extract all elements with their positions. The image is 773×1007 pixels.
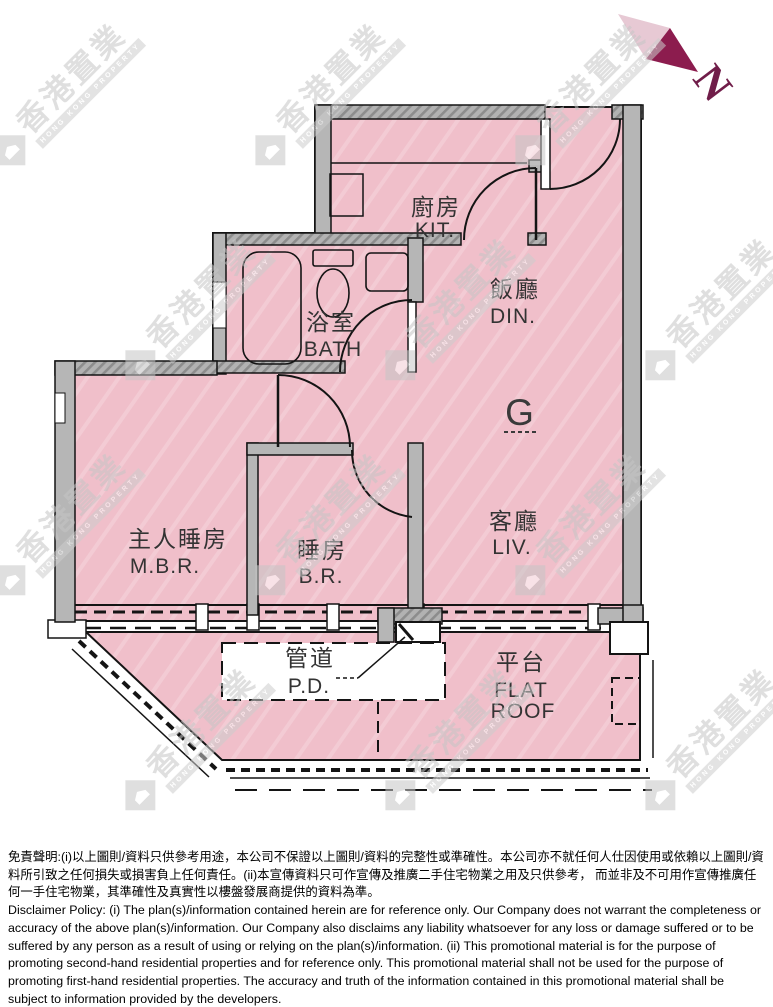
compass: N	[618, 14, 742, 111]
room-label-bath-en: BATH	[304, 338, 362, 361]
room-label-kitchen-zh: 廚房	[411, 194, 461, 220]
room-label-dining-en: DIN.	[490, 305, 536, 328]
room-label-mbr-en: M.B.R.	[130, 555, 200, 578]
entry-door-leaf	[541, 119, 550, 189]
room-label-pd-en: P.D.	[288, 675, 330, 698]
disclaimer: 免責聲明:(i)以上圖則/資料只供參考用途，本公司不保證以上圖則/資料的完整性或…	[8, 849, 765, 1007]
room-label-flatroof-zh: 平台	[496, 649, 546, 675]
room-label-bath-zh: 浴室	[306, 309, 356, 335]
room-label-living-zh: 客廳	[489, 508, 539, 534]
room-label-br-zh: 睡房	[297, 537, 347, 563]
room-label-br-en: B.R.	[299, 565, 344, 588]
disclaimer-chinese: 免責聲明:(i)以上圖則/資料只供參考用途，本公司不保證以上圖則/資料的完整性或…	[8, 849, 765, 902]
floor-plan-drawing: 廚房 KIT. 飯廳 DIN. 浴室 BATH 主人睡房 M.B.R. 睡房 B…	[0, 0, 773, 845]
room-label-flatroof-en1: FLAT	[494, 679, 548, 702]
bath-door-leaf	[408, 302, 416, 372]
room-label-kitchen-en: KIT.	[415, 219, 455, 242]
room-label-pd-zh: 管道	[285, 645, 335, 671]
disclaimer-english: Disclaimer Policy: (i) The plan(s)/infor…	[8, 902, 765, 1007]
room-label-living-en: LIV.	[492, 536, 531, 559]
floor-plan-page: 廚房 KIT. 飯廳 DIN. 浴室 BATH 主人睡房 M.B.R. 睡房 B…	[0, 0, 773, 1007]
room-label-dining-zh: 飯廳	[490, 276, 540, 302]
room-label-flatroof-en2: ROOF	[491, 700, 556, 723]
unit-letter: G	[505, 392, 535, 433]
room-label-mbr-zh: 主人睡房	[128, 526, 228, 552]
